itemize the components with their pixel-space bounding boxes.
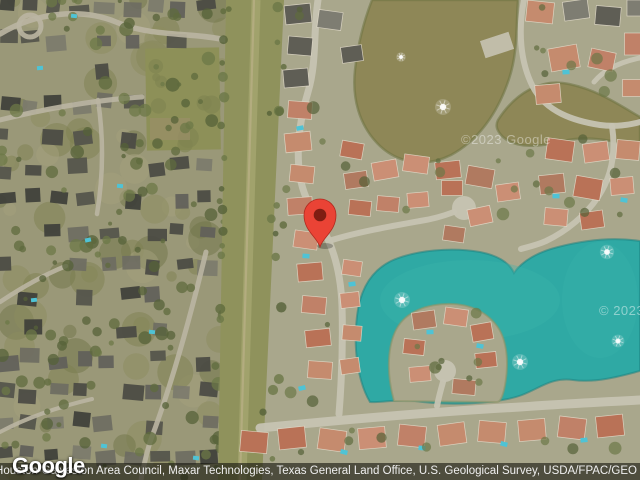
attribution-bar: ous, Houston-Galveston Area Council, Max… xyxy=(0,463,640,480)
pin-dot xyxy=(314,209,327,222)
pin-body xyxy=(304,199,336,247)
satellite-map[interactable]: ©2023 Google © 2023 ous, Houston-Galvest… xyxy=(0,0,640,480)
location-pin[interactable] xyxy=(302,197,338,249)
attribution-text: ous, Houston-Galveston Area Council, Max… xyxy=(0,465,637,477)
google-logo[interactable]: Google xyxy=(12,453,85,479)
